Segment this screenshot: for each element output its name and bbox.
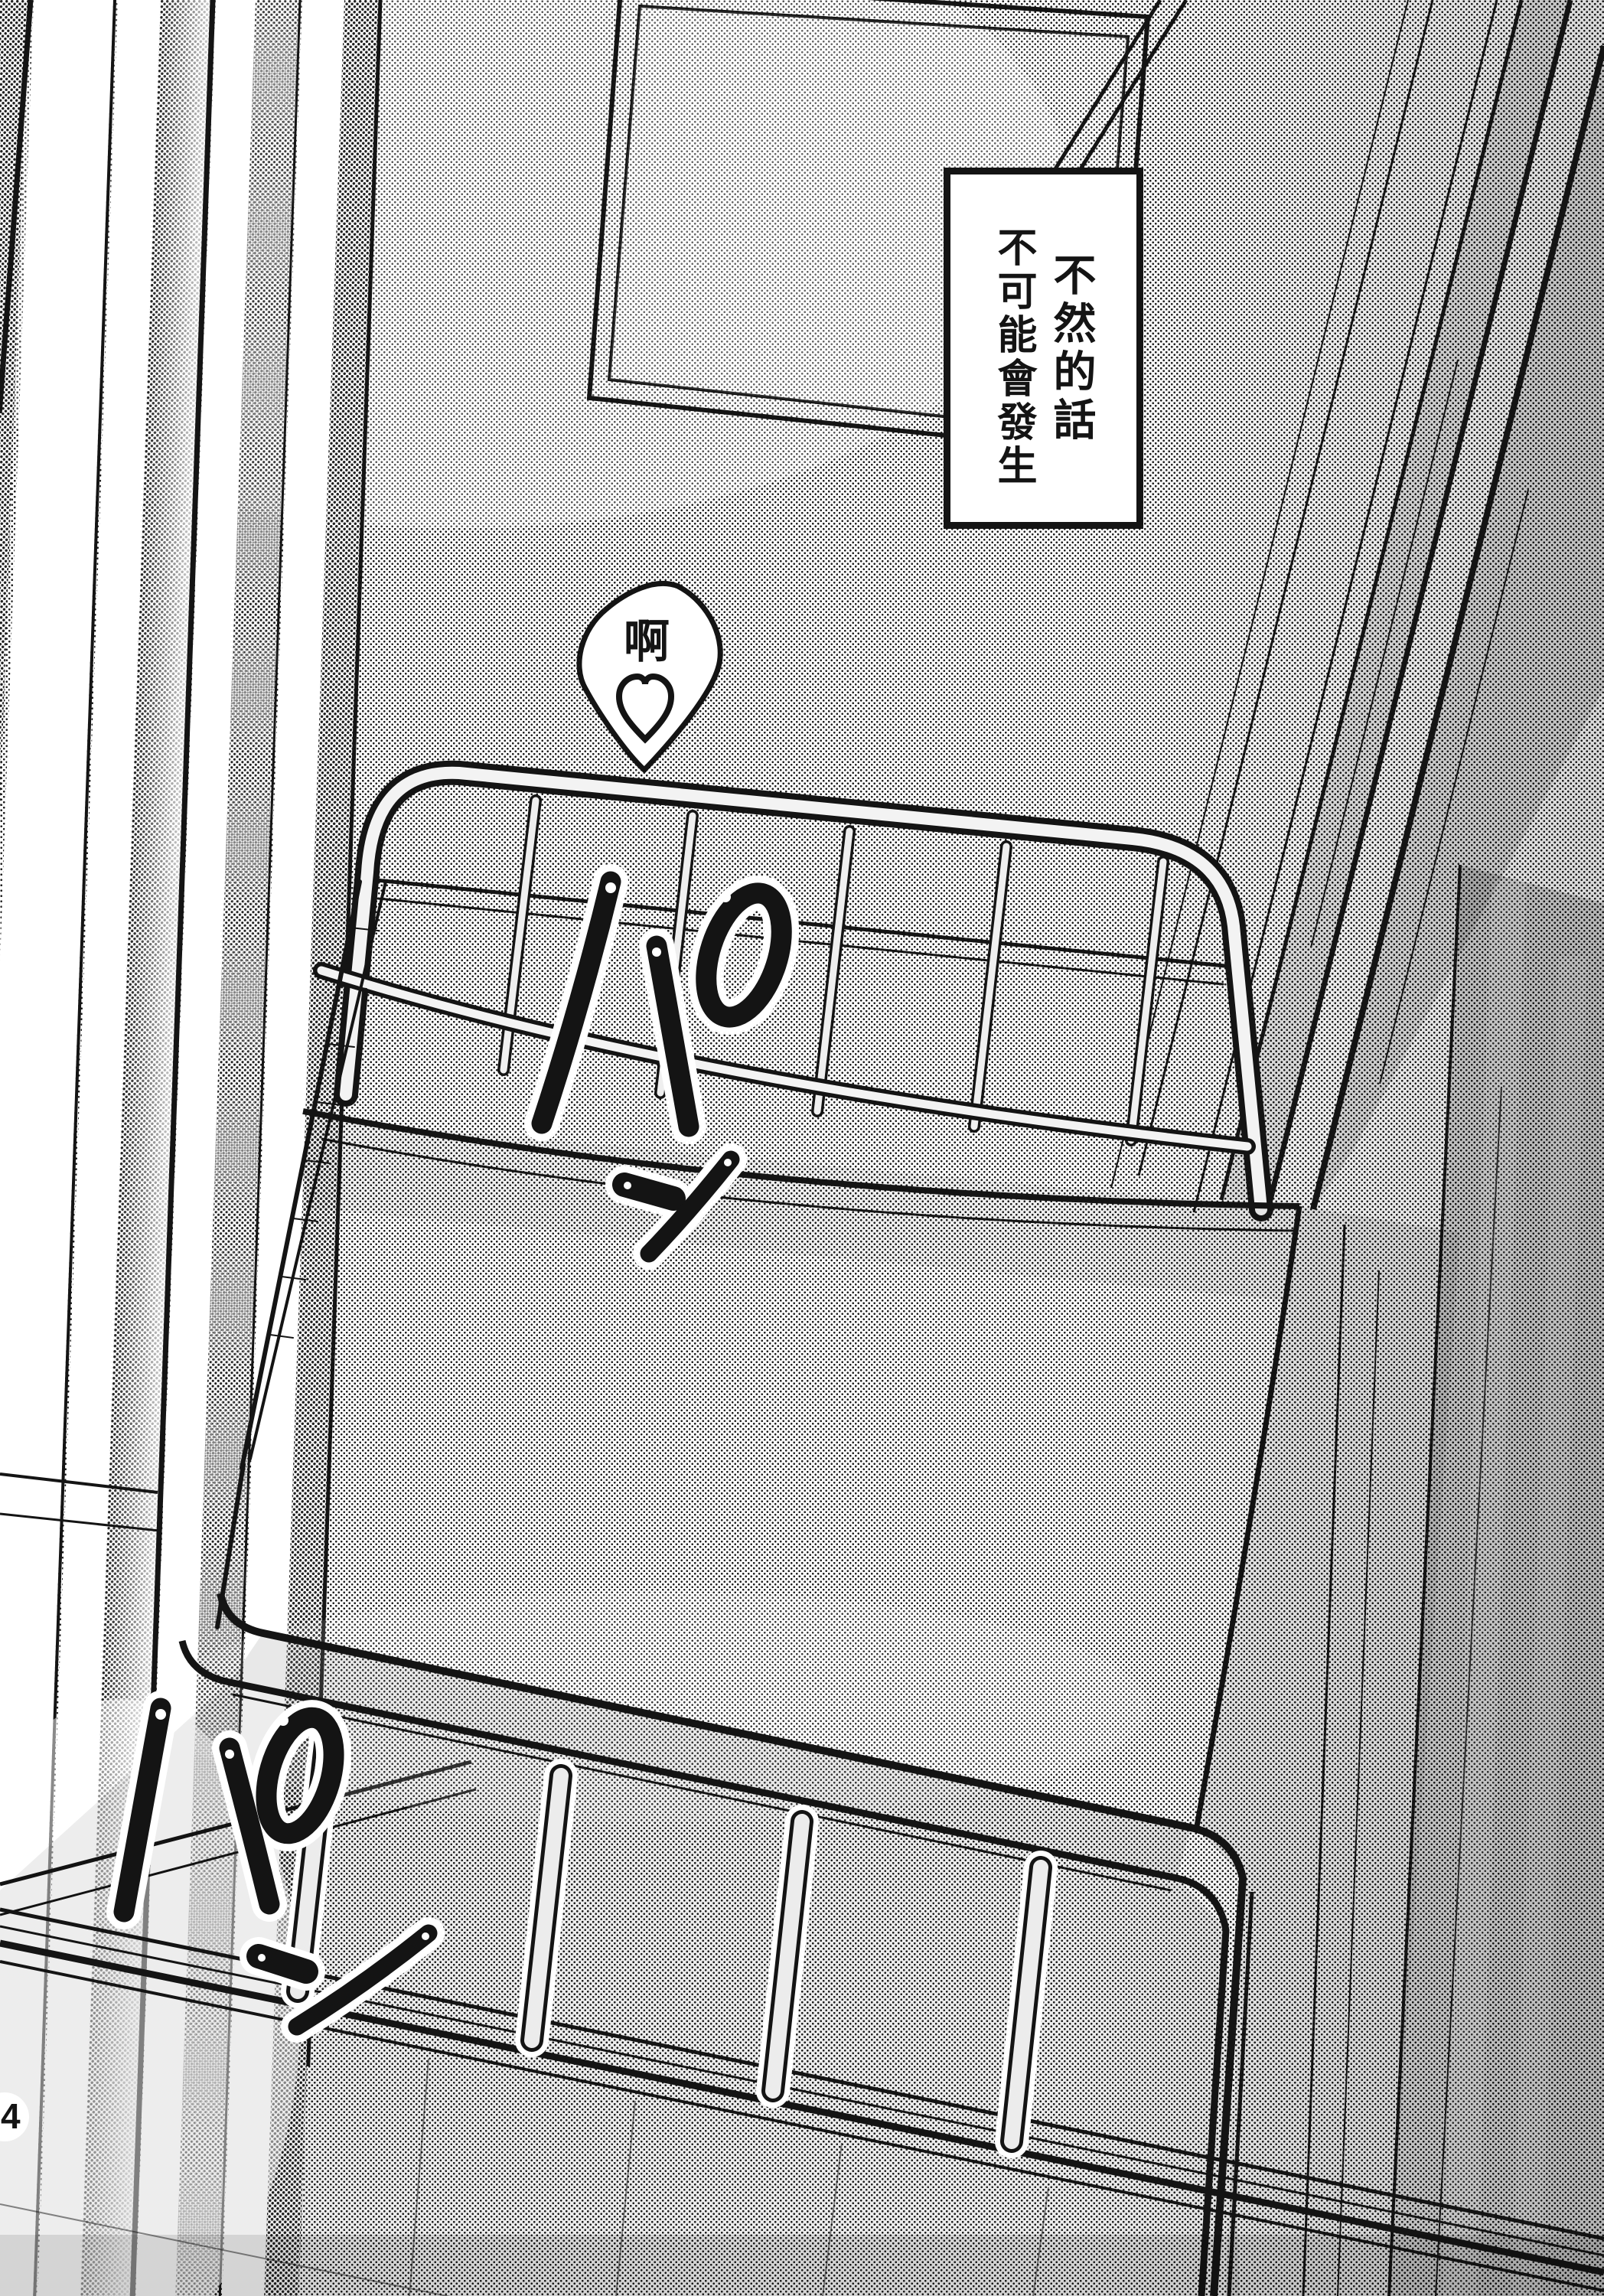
moan-text: 啊 — [617, 615, 676, 669]
speech-text-column-right: 不然的話 — [1050, 253, 1093, 445]
speech-box: 不然的話 不可能會發生 — [944, 168, 1143, 529]
page-number-badge: 4 — [0, 2092, 29, 2141]
manga-panel-art — [0, 0, 1604, 2296]
speech-text-column-left: 不可能會發生 — [993, 227, 1033, 488]
page-number-text: 4 — [0, 2092, 29, 2140]
manga-page: 不然的話 不可能會發生 啊 4 — [0, 0, 1604, 2296]
